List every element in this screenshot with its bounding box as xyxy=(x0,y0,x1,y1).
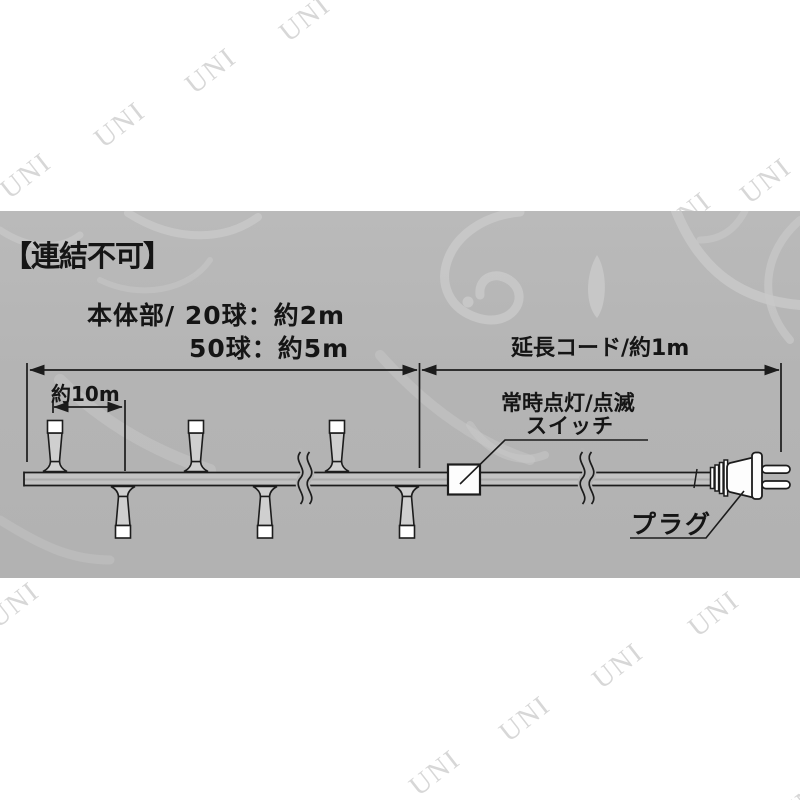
bulb-spacing-label: 約10m xyxy=(51,378,120,407)
watermark-text: UNI xyxy=(494,681,569,749)
product-diagram-image: UNI UNI UNI UNI UNI UNI UNI UNI UNI UNI … xyxy=(0,0,800,800)
main-length-label-2: 50球：約5m xyxy=(189,329,349,365)
watermark-text: UNI xyxy=(587,628,662,696)
watermark-text: UNI xyxy=(735,143,800,211)
watermark-text: UNI xyxy=(89,87,164,155)
watermark-text: UNI xyxy=(404,735,479,800)
no-connection-heading: 【連結不可】 xyxy=(3,233,171,275)
watermark-text: UNI xyxy=(773,764,800,800)
watermark-text: UNI xyxy=(0,138,69,206)
watermark-text: UNI xyxy=(180,33,255,101)
main-length-label: 本体部/ 20球：約2m xyxy=(87,296,345,332)
plug-label: プラグ xyxy=(631,505,712,541)
extension-cord-label: 延長コード/約1m xyxy=(511,330,689,362)
watermark-text: UNI xyxy=(683,576,758,644)
watermark-text: UNI xyxy=(274,0,349,49)
switch-label: スイッチ xyxy=(526,410,614,440)
